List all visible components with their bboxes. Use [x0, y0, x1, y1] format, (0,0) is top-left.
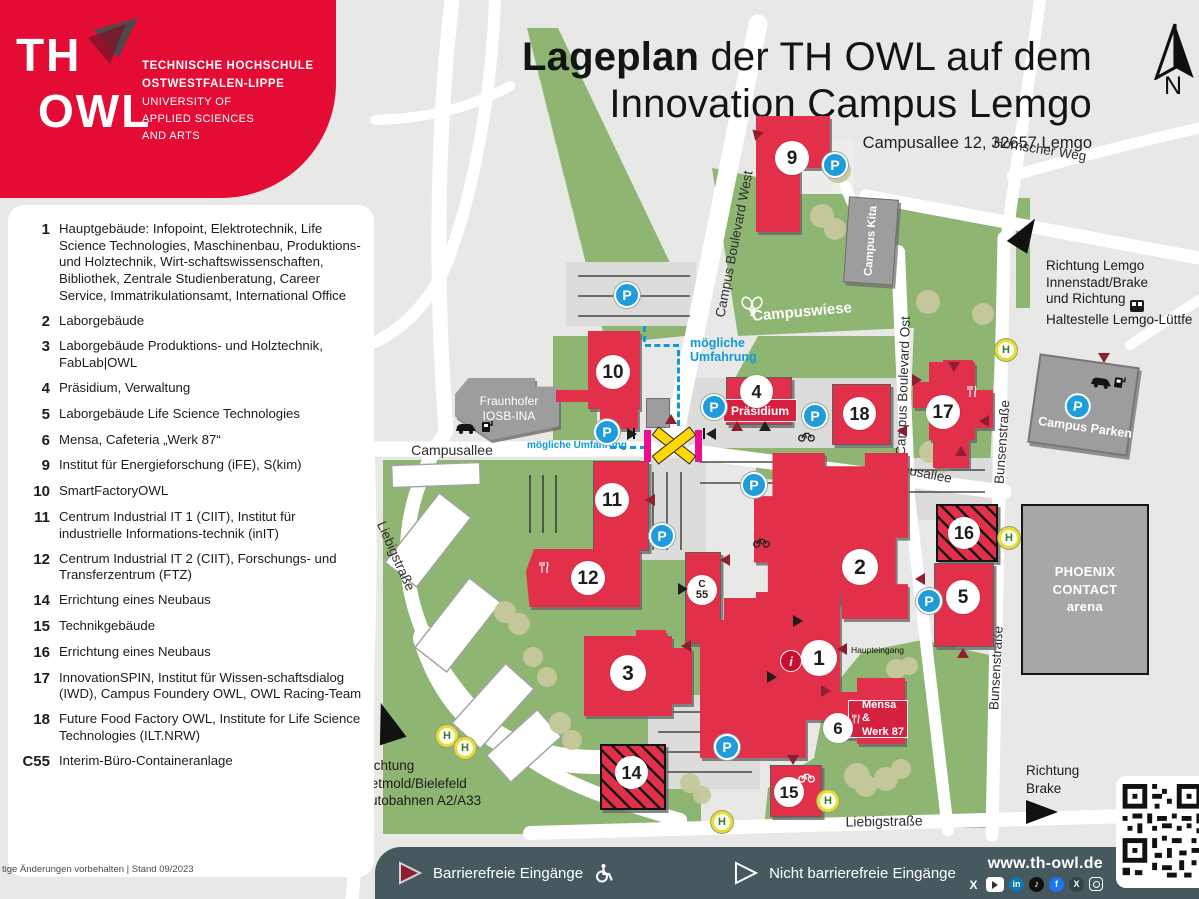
logo-triangle-icon	[86, 12, 146, 72]
parking-icon: P	[614, 282, 640, 308]
barrier-free-entrance-icon	[397, 860, 423, 886]
legend-item: 18Future Food Factory OWL, Institute for…	[18, 711, 362, 744]
bus-stop-icon: H	[817, 790, 839, 812]
logo-th: TH	[16, 32, 81, 78]
building-legend-panel: 1Hauptgebäude: Infopoint, Elektrotechnik…	[8, 205, 374, 877]
building-campus-kita: Campus Kita	[843, 196, 899, 285]
phoenix-arena-label: PHOENIX CONTACT arena	[1053, 563, 1118, 616]
instagram-icon[interactable]	[1089, 877, 1103, 891]
barrier-icon	[627, 428, 637, 440]
building-18-badge: 18	[843, 397, 876, 430]
legend-item: 4Präsidium, Verwaltung	[18, 380, 362, 397]
legend-item: 16Errichtung eines Neubaus	[18, 644, 362, 661]
info-icon: i	[780, 650, 802, 672]
entrance-marker	[720, 554, 730, 566]
parking-icon: P	[741, 472, 767, 498]
badminton-icon	[738, 296, 766, 320]
bicycle-icon	[798, 430, 815, 442]
building-connector	[556, 390, 590, 402]
parking-icon: P	[701, 394, 727, 420]
qr-code	[1116, 776, 1199, 888]
parking-icon: P	[649, 523, 675, 549]
tiktok-icon[interactable]: ♪	[1029, 877, 1044, 892]
title-bold: Lageplan	[522, 35, 699, 79]
ev-charger-icon	[482, 419, 493, 433]
legend-item: 9Institut für Energieforschung (iFE), S(…	[18, 457, 362, 474]
building-campus-parken: P Campus Parken	[1027, 353, 1140, 456]
legend-item: 17InnovationSPIN, Institut für Wissen-sc…	[18, 670, 362, 703]
logo-wordmark: TECHNISCHE HOCHSCHULE OSTWESTFALEN-LIPPE…	[142, 58, 314, 145]
xing-icon[interactable]: X	[1069, 877, 1084, 892]
building-9	[756, 116, 832, 234]
parking-icon: P	[594, 419, 620, 445]
facebook-icon[interactable]: f	[1049, 877, 1064, 892]
building-11-badge: 11	[595, 483, 629, 517]
direction-lemgo: Richtung Lemgo Innenstadt/Brake und Rich…	[1046, 258, 1192, 329]
entrance-marker	[759, 421, 771, 431]
building-16-badge: 16	[948, 517, 980, 549]
campus-map-poster: Campusallee Campusallee Campus Boulevard…	[0, 0, 1199, 899]
barrier-icon	[706, 428, 716, 440]
entrance-marker	[731, 421, 743, 431]
th-owl-logo: TH OWL TECHNISCHE HOCHSCHULE OSTWESTFALE…	[0, 0, 336, 198]
entrance-marker	[681, 640, 691, 652]
revision-note: tige Änderungen vorbehalten | Stand 09/2…	[2, 864, 194, 875]
legend-item: 12Centrum Industrial IT 2 (CIIT), Forsch…	[18, 551, 362, 584]
building-1-badge: 1	[801, 640, 837, 676]
wheelchair-icon	[593, 863, 613, 883]
car-icon	[1090, 375, 1113, 390]
street-campusallee-west: Campusallee	[411, 442, 493, 458]
utensils-icon	[966, 385, 977, 398]
not-barrier-free-label: Nicht barrierefreie Eingänge	[769, 865, 956, 882]
building-17-badge: 17	[926, 395, 960, 429]
legend-item: 15Technikgebäude	[18, 618, 362, 635]
entrance-marker	[1098, 353, 1110, 363]
title-rest: der TH OWL auf dem	[699, 35, 1092, 79]
bicycle-icon	[753, 536, 770, 548]
direction-detmold: Richtung Detmold/Bielefeld Autobahnen A2…	[361, 757, 481, 810]
building-9-badge: 9	[775, 141, 809, 175]
bus-icon	[1130, 300, 1144, 312]
legend-item: 6Mensa, Cafeteria „Werk 87“	[18, 432, 362, 449]
legend-item: 14Errichtung eines Neubaus	[18, 592, 362, 609]
linkedin-icon[interactable]: in	[1009, 877, 1024, 892]
building-15-badge: 15	[774, 777, 804, 807]
parking-icon: P	[714, 734, 740, 760]
building-6-badge: 6	[823, 713, 853, 743]
building-phoenix-arena: PHOENIX CONTACT arena	[1021, 504, 1149, 675]
legend-item: 1Hauptgebäude: Infopoint, Elektrotechnik…	[18, 221, 362, 304]
parking-icon: P	[802, 403, 828, 429]
legend-item: 11Centrum Industrial IT 1 (CIIT), Instit…	[18, 509, 362, 542]
entrance-marker	[793, 615, 803, 627]
not-barrier-free-entrance-icon	[733, 860, 759, 886]
entrance-marker	[665, 414, 677, 424]
entrance-marker	[767, 671, 777, 683]
mensa-label-box: Mensa &Werk 87	[848, 700, 908, 738]
entrance-marker	[821, 685, 831, 697]
building-10-badge: 10	[596, 355, 630, 389]
building-12-badge: 12	[571, 561, 605, 595]
entrance-marker	[897, 425, 907, 437]
campus-parken-label: Campus Parken	[1037, 414, 1133, 441]
parking-icon: P	[1063, 392, 1092, 421]
utensils-icon	[538, 561, 549, 574]
logo-owl: OWL	[38, 88, 151, 134]
fraunhofer-label: Fraunhofer IOSB-INA	[469, 394, 549, 424]
legend-item: C55Interim-Büro-Containeranlage	[18, 753, 362, 770]
legend-item: 5Laborgebäude Life Science Technologies	[18, 406, 362, 423]
entrance-marker	[787, 755, 799, 765]
haupteingang-label: Haupteingang	[851, 645, 904, 655]
youtube-icon[interactable]	[986, 877, 1004, 892]
entrance-marker	[957, 648, 969, 658]
barrier-icon	[633, 428, 635, 439]
entrance-marker	[948, 362, 960, 372]
bus-stop-icon: H	[995, 339, 1017, 361]
building-2-badge: 2	[842, 549, 878, 585]
bus-stop-icon: H	[711, 811, 733, 833]
barrier-free-label: Barrierefreie Eingänge	[433, 865, 583, 882]
entrance-marker	[837, 643, 847, 655]
parking-icon: P	[916, 588, 942, 614]
direction-arrow	[1026, 800, 1058, 824]
campus-kita-label: Campus Kita	[863, 206, 880, 277]
entrance-marker	[955, 446, 967, 456]
entrance-marker	[912, 374, 922, 386]
entrance-marker	[678, 583, 688, 595]
building-5-badge: 5	[946, 580, 980, 614]
direction-brake: Richtung Brake	[1026, 762, 1079, 797]
bus-stop-icon: H	[998, 527, 1020, 549]
building-14-badge: 14	[615, 756, 648, 789]
entrance-marker	[645, 494, 655, 506]
building-3-badge: 3	[610, 655, 646, 691]
building-4-badge: 4	[740, 375, 773, 408]
x-icon[interactable]: X	[966, 877, 981, 892]
ev-charger-icon	[1114, 374, 1127, 389]
parking-icon: P	[822, 152, 848, 178]
legend-item: 2Laborgebäude	[18, 313, 362, 330]
legend-item: 3Laborgebäude Produktions- und Holztechn…	[18, 338, 362, 371]
detour-dashed-line	[645, 344, 679, 347]
building-c55-badge: C55	[687, 575, 717, 605]
construction-crossing	[644, 424, 702, 470]
website-link[interactable]: www.th-owl.de	[966, 855, 1103, 873]
car-icon	[455, 422, 477, 434]
barrier-icon	[703, 428, 705, 439]
street-liebigstrasse-south: Liebigstraße	[845, 812, 922, 829]
detour-dashed-line	[677, 350, 680, 426]
bicycle-icon	[798, 771, 815, 783]
social-icons: X in ♪ f X	[966, 877, 1103, 892]
compass-label: N	[1164, 72, 1182, 101]
entrance-marker	[915, 573, 925, 585]
bus-stop-icon: H	[454, 737, 476, 759]
website-block: www.th-owl.de X in ♪ f X	[966, 855, 1103, 892]
entrance-marker	[979, 415, 989, 427]
legend-item: 10SmartFactoryOWL	[18, 483, 362, 500]
detour-label: möglicheUmfahrung	[690, 336, 757, 365]
